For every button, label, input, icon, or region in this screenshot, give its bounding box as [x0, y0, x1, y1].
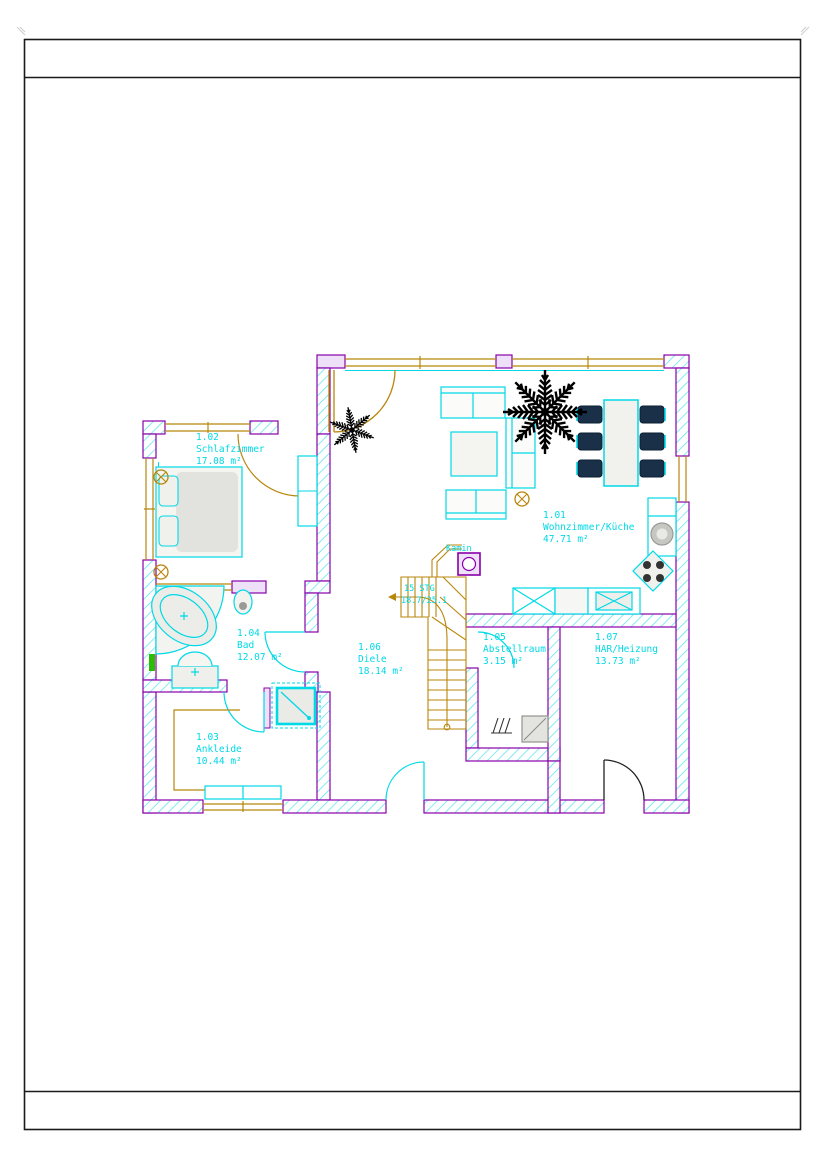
stairs-label-line2: 18.7/25.1 [401, 596, 447, 606]
bedroom-furniture [154, 456, 317, 579]
room-label-har: 1.07 HAR/Heizung 13.73 m² [595, 632, 658, 667]
accent-green-mark [149, 654, 155, 671]
room-number: 1.03 [196, 732, 219, 743]
room-number: 1.02 [196, 432, 219, 443]
stove [633, 551, 673, 591]
wall-left [143, 692, 156, 813]
living-furniture [441, 387, 535, 519]
lamp-symbol [515, 492, 529, 506]
kitchen-base-units [513, 588, 640, 614]
room-area: 47.71 m² [543, 534, 589, 545]
room-number: 1.01 [543, 510, 566, 521]
sofa-top [441, 387, 505, 418]
toilet [234, 590, 252, 614]
wall-right-upper [676, 368, 689, 456]
room-name: Ankleide [196, 744, 242, 755]
stairs-label-line1: 15 STG [404, 584, 435, 594]
kamin-label: Kamin [446, 544, 472, 554]
sideboard [205, 786, 281, 799]
har-exterior-door [604, 760, 644, 800]
wall-bottom [283, 800, 386, 813]
room-label-schlafzimmer: 1.02 Schlafzimmer 17.08 m² [196, 432, 265, 467]
wall-bath-hall [305, 593, 318, 632]
room-area: 13.73 m² [595, 656, 641, 667]
wall-bottom [644, 800, 689, 813]
window-left-wall [144, 458, 155, 560]
wall-bed-bath [305, 581, 330, 593]
dressing-door [224, 692, 264, 732]
room-area: 10.44 m² [196, 756, 242, 767]
wall-block [143, 421, 165, 434]
pillow [159, 476, 178, 506]
hall-entry-door [386, 762, 424, 800]
drawing-sheet: 15 STG 18.7/25.1 Kamin [0, 0, 826, 1169]
stairs-arrow [388, 593, 396, 601]
window-top-right [512, 356, 664, 369]
dining-chair [640, 406, 664, 423]
dining-table [604, 400, 638, 486]
room-area: 17.08 m² [196, 456, 242, 467]
wall-block [664, 355, 689, 368]
wall-har-left [548, 761, 560, 813]
window-right-wall [679, 456, 686, 502]
wall-right-lower [676, 502, 689, 813]
room-name: HAR/Heizung [595, 644, 658, 655]
room-label-ankleide: 1.03 Ankleide 10.44 m² [196, 732, 242, 767]
wall-block [250, 421, 278, 434]
corner-mark-top-right [801, 27, 809, 35]
bed-blanket [176, 472, 238, 552]
room-area: 3.15 m² [483, 656, 523, 667]
wall-hall-storage [466, 668, 478, 748]
room-name: Abstellraum [483, 644, 546, 655]
kamin: Kamin [432, 544, 480, 577]
dining-chair [578, 433, 602, 450]
wall-living-service [466, 614, 676, 627]
dining-group [577, 400, 665, 486]
room-name: Schlafzimmer [196, 444, 265, 455]
room-name: Diele [358, 654, 387, 665]
room-area: 18.14 m² [358, 666, 404, 677]
wall-bedroom-right [317, 434, 330, 581]
sheet-frame [17, 27, 809, 1130]
wall-shower [264, 688, 270, 728]
room-label-diele: 1.06 Diele 18.14 m² [358, 642, 404, 677]
room-label-abstellraum: 1.05 Abstellraum 3.15 m² [483, 632, 546, 667]
coffee-table [451, 432, 497, 476]
room-name: Bad [237, 640, 254, 651]
drain-symbol [491, 718, 512, 733]
pillow [159, 516, 178, 546]
kitchen-sink [651, 523, 673, 545]
wall-hall-upper [317, 368, 330, 434]
shower [272, 683, 320, 728]
sofa-bottom [446, 490, 506, 519]
wall-bottom [143, 800, 203, 813]
dining-chair [640, 460, 664, 477]
wall-left [143, 434, 156, 458]
dining-chair [578, 460, 602, 477]
room-number: 1.04 [237, 628, 260, 639]
room-label-bad: 1.04 Bad 12.07 m² [237, 628, 283, 663]
window-bottom [203, 801, 283, 812]
room-name: Wohnzimmer/Küche [543, 522, 635, 533]
room-number: 1.07 [595, 632, 618, 643]
palm-plant-large [503, 370, 587, 454]
room-label-wohnzimmer: 1.01 Wohnzimmer/Küche 47.71 m² [543, 510, 635, 545]
wall-bottom [424, 800, 604, 813]
corner-mark-top-left [17, 27, 25, 35]
dining-chair [640, 433, 664, 450]
room-area: 12.07 m² [237, 652, 283, 663]
stairs-winder [432, 577, 466, 640]
window-top-left [345, 356, 496, 369]
wall-block [496, 355, 512, 368]
room-number: 1.06 [358, 642, 381, 653]
washbasin [172, 652, 218, 688]
wall-storage-har [548, 627, 560, 761]
wardrobe [298, 456, 317, 526]
plant-small [329, 407, 375, 454]
wall-storage-bottom [466, 748, 560, 761]
wall-bed-bath [232, 581, 266, 593]
wall-block [317, 355, 345, 368]
storage-room [491, 716, 548, 742]
floor-plan-drawing: 15 STG 18.7/25.1 Kamin [0, 0, 826, 1169]
kitchen [513, 498, 676, 614]
room-number: 1.05 [483, 632, 506, 643]
kamin-pipe [463, 558, 476, 571]
wall-dressing-right [317, 692, 330, 800]
